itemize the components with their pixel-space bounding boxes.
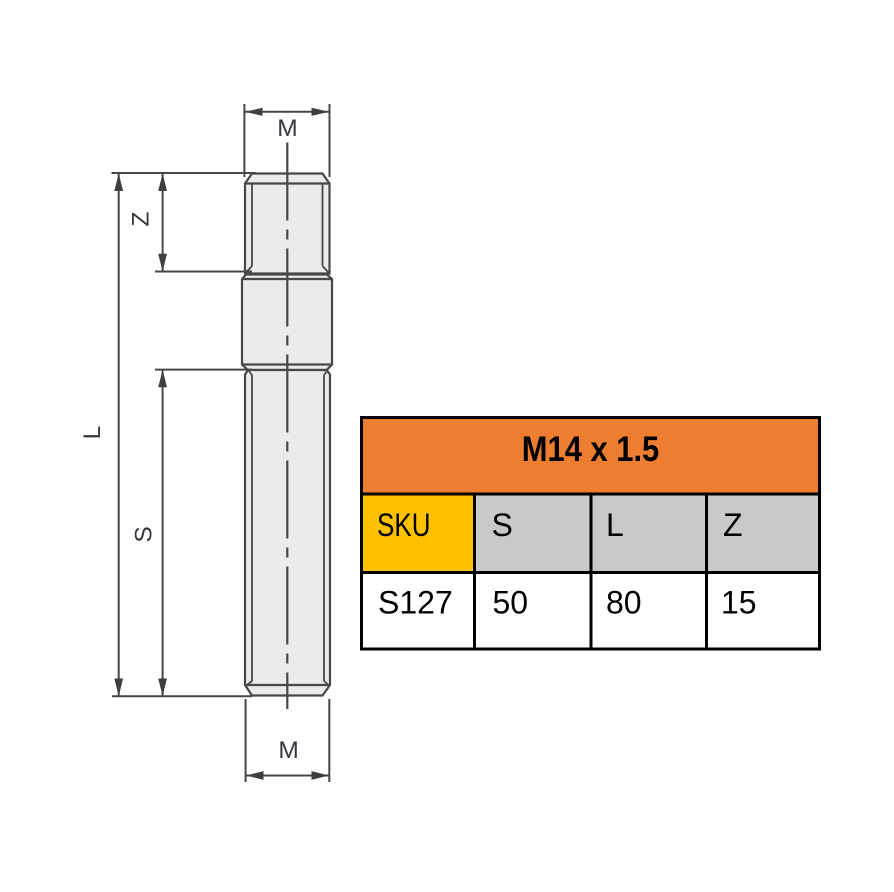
svg-text:SKU: SKU bbox=[377, 507, 431, 543]
svg-text:M: M bbox=[278, 737, 298, 764]
svg-text:80: 80 bbox=[606, 585, 642, 621]
svg-text:M: M bbox=[277, 115, 297, 142]
svg-text:L: L bbox=[606, 507, 624, 543]
svg-text:S: S bbox=[492, 507, 513, 543]
svg-text:Z: Z bbox=[723, 507, 743, 543]
svg-text:50: 50 bbox=[493, 585, 529, 621]
svg-text:15: 15 bbox=[721, 585, 757, 621]
svg-text:Z: Z bbox=[127, 211, 154, 226]
svg-text:S127: S127 bbox=[378, 585, 453, 621]
svg-text:S: S bbox=[130, 526, 157, 542]
svg-text:M14 x 1.5: M14 x 1.5 bbox=[522, 430, 660, 469]
svg-text:L: L bbox=[79, 426, 106, 440]
